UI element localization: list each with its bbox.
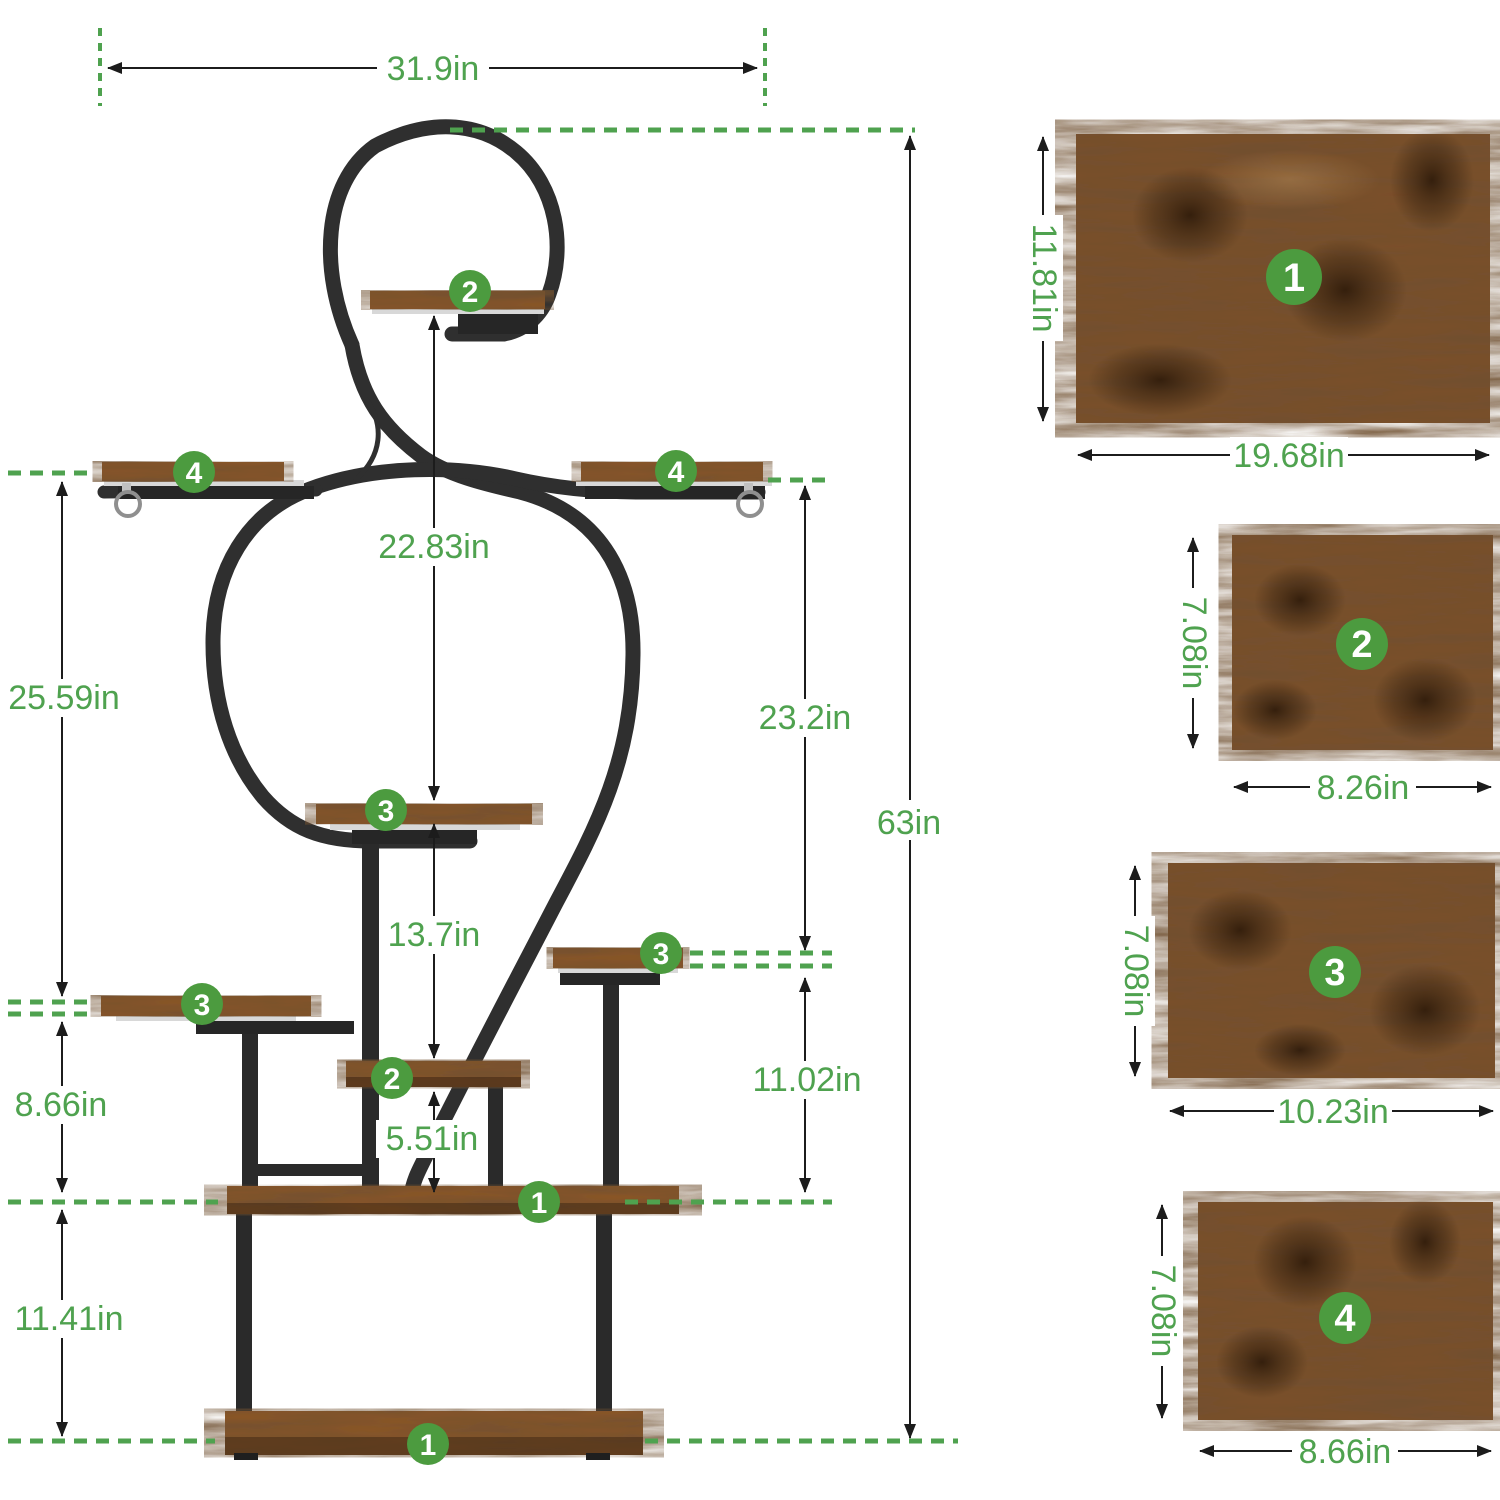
panel-number: 4: [1334, 1298, 1355, 1340]
dim-overall-width: 31.9in: [108, 50, 757, 88]
dim-center-lower: 5.51in: [376, 1092, 488, 1192]
panel-height-label-group: 7.08in: [1144, 1256, 1182, 1366]
badge-shelf3-right: 3: [640, 932, 682, 974]
badge-number: 3: [378, 795, 395, 828]
center-lower-label: 5.51in: [386, 1120, 479, 1158]
badge-number: 3: [653, 938, 670, 971]
left-lower-label: 11.41in: [14, 1300, 123, 1338]
badge-shelf4-right: 4: [655, 450, 697, 492]
frame-crossbar: [242, 1164, 379, 1176]
dim-left-lower: 11.41in: [8, 1210, 130, 1436]
panel-1: 1 11.81in 19.68in: [1025, 128, 1490, 475]
center-upper-label: 22.83in: [378, 528, 490, 566]
badge-number: 4: [668, 456, 685, 489]
shelf-plank: [316, 804, 532, 824]
base-foot: [234, 1453, 258, 1460]
dim-left-middle: 8.66in: [6, 1022, 116, 1192]
panel-width-label: 10.23in: [1277, 1093, 1389, 1131]
panel-number: 1: [1283, 256, 1305, 300]
panel-number: 3: [1324, 952, 1345, 994]
shelf-bracket: [458, 314, 538, 334]
badge-shelf2-lower: 2: [371, 1057, 413, 1099]
dim-right-upper: 23.2in: [750, 486, 860, 950]
shelf-3-left: [101, 996, 354, 1034]
badge-shelf3-middle: 3: [365, 789, 407, 831]
panel-width-label: 8.66in: [1299, 1433, 1392, 1471]
badge-shelf2-top: 2: [449, 270, 491, 312]
dim-overall-height: 63in: [870, 136, 950, 1438]
badge-number: 2: [462, 276, 479, 309]
plant-stand-dimension-diagram: 2 4 4 3 3 3 2 1: [0, 0, 1500, 1500]
dim-right-lower: 11.02in: [746, 978, 868, 1192]
dim-center-middle: 13.7in: [382, 824, 486, 1058]
shelf-rail-black: [560, 973, 660, 985]
panel-3: 3 7.08in 10.23in: [1117, 863, 1495, 1131]
platform-board: [227, 1186, 679, 1214]
right-mid-post: [603, 985, 619, 1196]
panel-height-label: 7.08in: [1144, 1265, 1182, 1358]
shelf-rail-black: [352, 830, 477, 844]
shelf-rail-black: [196, 1021, 354, 1034]
left-middle-label: 8.66in: [15, 1086, 108, 1124]
badge-number: 2: [384, 1063, 401, 1096]
badge-shelf4-left: 4: [173, 451, 215, 493]
overall-height-label: 63in: [877, 804, 941, 842]
dimension-annotations: 31.9in 63in 25.59in 8.66in 11.41in: [2, 50, 950, 1438]
panel-height-label: 11.81in: [1025, 223, 1063, 332]
badge-base: 1: [407, 1423, 449, 1465]
badge-shelf3-left: 3: [181, 983, 223, 1025]
right-lower-label: 11.02in: [752, 1061, 861, 1099]
shelf2-right-post: [488, 1087, 503, 1196]
badge-number: 3: [194, 989, 211, 1022]
platform-edge: [227, 1203, 679, 1214]
panel-height-label: 7.08in: [1117, 925, 1155, 1018]
middle-loop-tube: [213, 470, 758, 841]
right-leg: [596, 1214, 612, 1412]
shelf-rail-silver: [330, 824, 520, 830]
panel-number: 2: [1351, 624, 1372, 666]
panel-height-label-group: 11.81in: [1025, 215, 1063, 341]
panel-height-label-group: 7.08in: [1175, 588, 1213, 698]
wood-panels: 1 11.81in 19.68in 2 7.08in: [1025, 128, 1495, 1471]
panel-height-label-group: 7.08in: [1117, 916, 1155, 1026]
dim-left-upper: 25.59in: [2, 482, 128, 996]
badge-number: 1: [531, 1187, 548, 1220]
diagram-page: 2 4 4 3 3 3 2 1: [0, 0, 1500, 1500]
panel-2: 2 7.08in 8.26in: [1175, 535, 1493, 807]
badge-number: 1: [420, 1429, 437, 1462]
left-upper-label: 25.59in: [8, 679, 120, 717]
panel-width-label: 19.68in: [1233, 437, 1345, 475]
dim-center-upper: 22.83in: [370, 316, 498, 800]
right-upper-label: 23.2in: [759, 699, 852, 737]
left-leg: [236, 1214, 252, 1412]
panel-height-label: 7.08in: [1175, 597, 1213, 690]
panel-width-label: 8.26in: [1317, 769, 1410, 807]
badge-platform: 1: [518, 1181, 560, 1223]
center-middle-label: 13.7in: [388, 916, 481, 954]
stand-structure: [104, 127, 758, 1412]
overall-width-label: 31.9in: [387, 50, 480, 88]
shelf-rail-black: [118, 486, 314, 499]
badge-number: 4: [186, 457, 203, 490]
base-foot: [586, 1453, 610, 1460]
panel-4: 4 7.08in 8.66in: [1144, 1200, 1493, 1471]
